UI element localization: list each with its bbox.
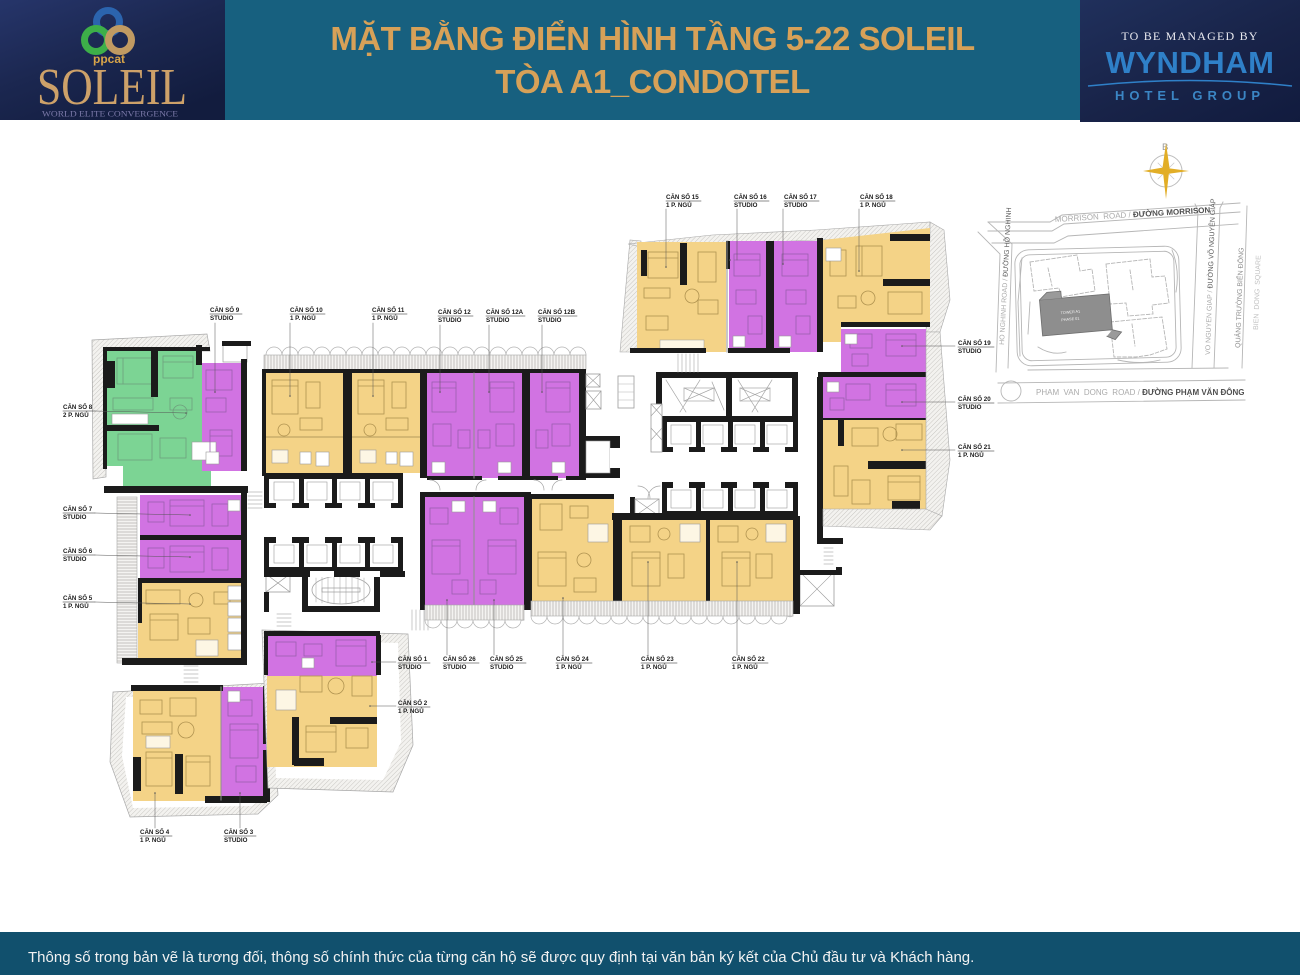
svg-text:STUDIO: STUDIO — [538, 317, 562, 324]
svg-text:CĂN SỐ 1: CĂN SỐ 1 — [398, 656, 428, 663]
svg-text:CĂN SỐ 17: CĂN SỐ 17 — [784, 194, 817, 201]
svg-text:1 P. NGỦ: 1 P. NGỦ — [398, 708, 424, 715]
svg-text:2 P. NGỦ: 2 P. NGỦ — [63, 412, 89, 419]
svg-text:PHAM VAN DONG ROAD / ĐƯỜNG: PHAM VAN DONG ROAD / ĐƯỜNG PHẠM VĂN ĐÔNG — [1036, 388, 1244, 397]
svg-text:CĂN SỐ 8: CĂN SỐ 8 — [63, 404, 93, 411]
svg-text:CĂN SỐ 6: CĂN SỐ 6 — [63, 548, 93, 555]
svg-text:QUẢNG TRƯỜNG BIỂN ĐÔNG: QUẢNG TRƯỜNG BIỂN ĐÔNG — [1233, 247, 1246, 348]
svg-text:CĂN SỐ 11: CĂN SỐ 11 — [372, 307, 405, 314]
svg-text:STUDIO: STUDIO — [210, 315, 234, 322]
svg-text:CĂN SỐ 4: CĂN SỐ 4 — [140, 829, 170, 836]
svg-text:1 P. NGỦ: 1 P. NGỦ — [958, 452, 984, 459]
svg-text:CĂN SỐ 21: CĂN SỐ 21 — [958, 444, 991, 451]
svg-text:CĂN SỐ 2: CĂN SỐ 2 — [398, 700, 428, 707]
svg-text:CĂN SỐ 12A: CĂN SỐ 12A — [486, 309, 524, 316]
svg-text:CĂN SỐ 18: CĂN SỐ 18 — [860, 194, 893, 201]
svg-text:STUDIO: STUDIO — [63, 514, 87, 521]
svg-text:STUDIO: STUDIO — [486, 317, 510, 324]
svg-text:CĂN SỐ 16: CĂN SỐ 16 — [734, 194, 767, 201]
svg-text:CĂN SỐ 22: CĂN SỐ 22 — [732, 656, 765, 663]
svg-text:CĂN SỐ 12B: CĂN SỐ 12B — [538, 309, 576, 316]
svg-text:CĂN SỐ 23: CĂN SỐ 23 — [641, 656, 674, 663]
svg-text:CĂN SỐ 15: CĂN SỐ 15 — [666, 194, 699, 201]
svg-text:STUDIO: STUDIO — [784, 202, 808, 209]
svg-text:CĂN SỐ 10: CĂN SỐ 10 — [290, 307, 323, 314]
svg-text:1 P. NGỦ: 1 P. NGỦ — [641, 664, 667, 671]
svg-text:1 P. NGỦ: 1 P. NGỦ — [140, 837, 166, 844]
svg-text:1 P. NGỦ: 1 P. NGỦ — [556, 664, 582, 671]
svg-text:CĂN SỐ 24: CĂN SỐ 24 — [556, 656, 589, 663]
svg-text:MORRISON ROAD / ĐƯỜNG MORRISO: MORRISON ROAD / ĐƯỜNG MORRISON — [1055, 205, 1211, 224]
svg-text:BIEN DONG SQUARE: BIEN DONG SQUARE — [1253, 255, 1263, 330]
svg-text:STUDIO: STUDIO — [958, 348, 982, 355]
svg-text:1 P. NGỦ: 1 P. NGỦ — [666, 202, 692, 209]
svg-text:1 P. NGỦ: 1 P. NGỦ — [372, 315, 398, 322]
svg-text:CĂN SỐ 7: CĂN SỐ 7 — [63, 506, 93, 513]
svg-text:CĂN SỐ 9: CĂN SỐ 9 — [210, 307, 240, 314]
svg-text:CĂN SỐ 3: CĂN SỐ 3 — [224, 829, 254, 836]
svg-text:1 P. NGỦ: 1 P. NGỦ — [732, 664, 758, 671]
svg-text:1 P. NGỦ: 1 P. NGỦ — [860, 202, 886, 209]
svg-text:STUDIO: STUDIO — [443, 664, 467, 671]
svg-text:STUDIO: STUDIO — [438, 317, 462, 324]
svg-text:1 P. NGỦ: 1 P. NGỦ — [63, 603, 89, 610]
svg-text:CĂN SỐ 26: CĂN SỐ 26 — [443, 656, 476, 663]
svg-text:STUDIO: STUDIO — [398, 664, 422, 671]
svg-text:CĂN SỐ 5: CĂN SỐ 5 — [63, 595, 93, 602]
svg-text:CĂN SỐ 12: CĂN SỐ 12 — [438, 309, 471, 316]
svg-text:STUDIO: STUDIO — [734, 202, 758, 209]
svg-text:CĂN SỐ 25: CĂN SỐ 25 — [490, 656, 523, 663]
svg-text:CĂN SỐ 19: CĂN SỐ 19 — [958, 340, 991, 347]
svg-text:STUDIO: STUDIO — [63, 556, 87, 563]
svg-text:STUDIO: STUDIO — [224, 837, 248, 844]
svg-text:1 P. NGỦ: 1 P. NGỦ — [290, 315, 316, 322]
svg-text:CĂN SỐ 20: CĂN SỐ 20 — [958, 396, 991, 403]
svg-text:STUDIO: STUDIO — [490, 664, 514, 671]
svg-text:STUDIO: STUDIO — [958, 404, 982, 411]
